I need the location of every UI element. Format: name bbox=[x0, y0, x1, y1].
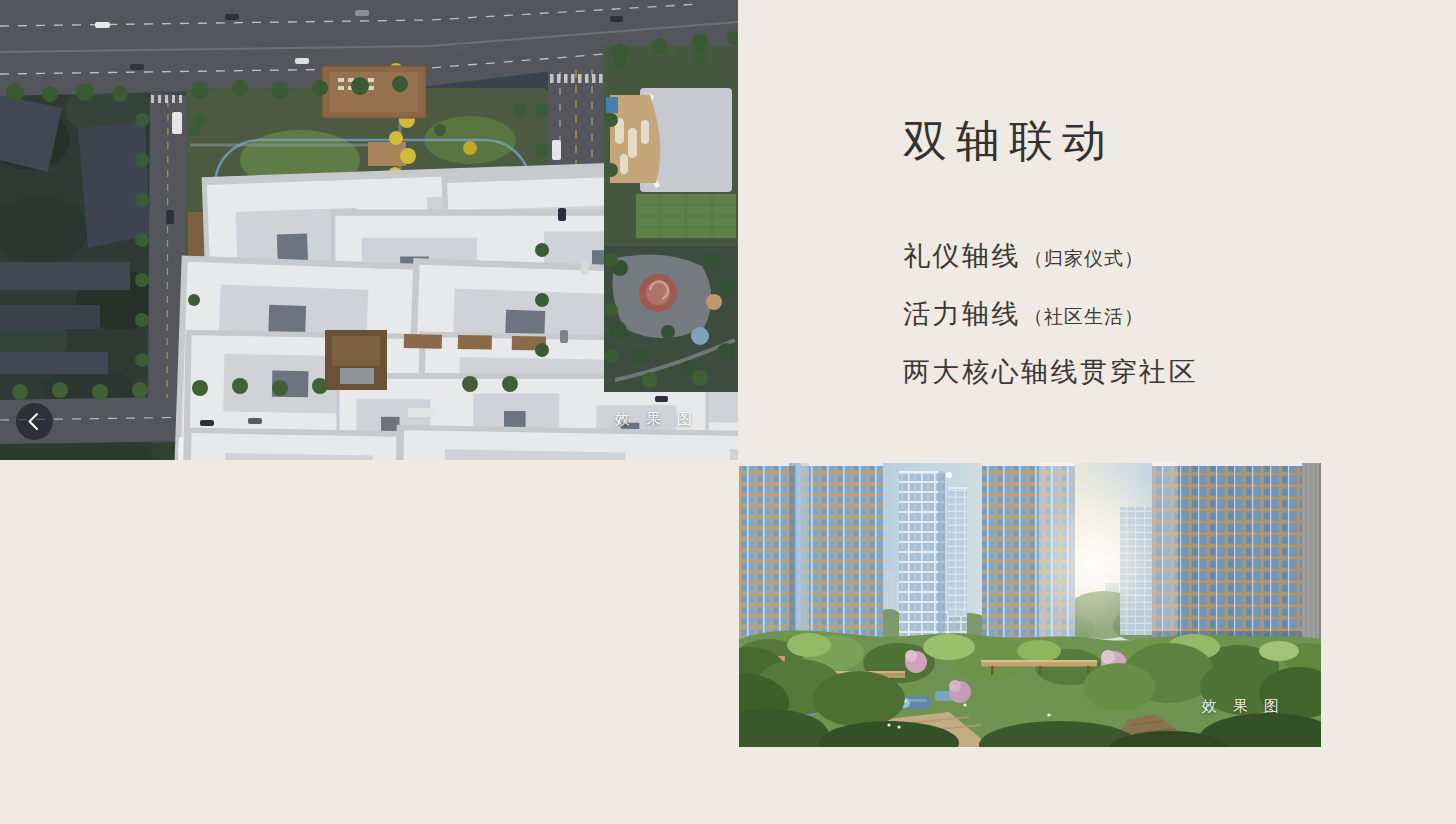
aerial-masterplan-image: 效 果 图 bbox=[0, 0, 738, 460]
axis-point: 礼仪轴线（归家仪式） bbox=[903, 229, 1201, 287]
text-panel: 双轴联动 礼仪轴线（归家仪式） 活力轴线（社区生活） 两大核心轴线贯穿社区 bbox=[903, 116, 1201, 403]
render-watermark: 效 果 图 bbox=[615, 410, 698, 429]
axis-point-note: （归家仪式） bbox=[1024, 248, 1144, 269]
landscape bbox=[739, 630, 1321, 747]
axis-point: 两大核心轴线贯穿社区 bbox=[903, 345, 1201, 403]
perspective-render-image: 效 果 图 bbox=[739, 463, 1321, 747]
slide-stage: 效 果 图 双轴联动 礼仪轴线（归家仪式） 活力轴线（社区生活） 两大核心轴线贯… bbox=[0, 0, 1456, 824]
chevron-left-icon bbox=[16, 403, 53, 440]
slide-title: 双轴联动 bbox=[903, 116, 1201, 168]
school bbox=[604, 46, 738, 246]
aerial-render-art bbox=[0, 0, 738, 460]
axis-point: 活力轴线（社区生活） bbox=[903, 287, 1201, 345]
axis-point-note: （社区生活） bbox=[1024, 306, 1144, 327]
axis-point-main: 活力轴线 bbox=[903, 299, 1021, 329]
park bbox=[604, 246, 738, 392]
axis-point-main: 两大核心轴线贯穿社区 bbox=[903, 357, 1198, 387]
prev-slide-button[interactable] bbox=[16, 403, 53, 440]
axis-point-main: 礼仪轴线 bbox=[903, 241, 1021, 271]
render-watermark: 效 果 图 bbox=[1202, 697, 1285, 716]
axis-points: 礼仪轴线（归家仪式） 活力轴线（社区生活） 两大核心轴线贯穿社区 bbox=[903, 229, 1201, 403]
